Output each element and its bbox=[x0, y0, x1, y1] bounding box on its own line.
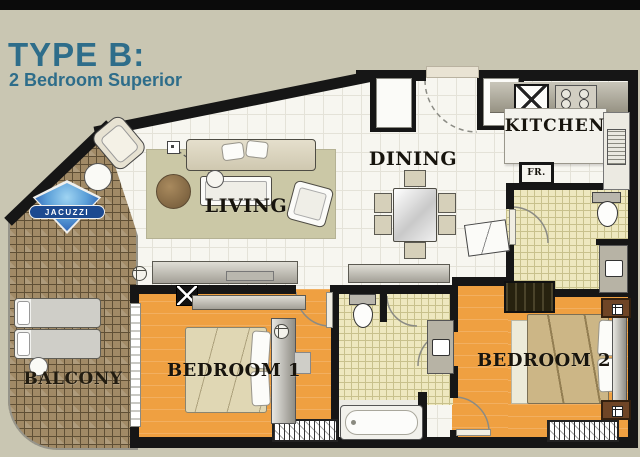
dining-chair-bottom bbox=[404, 242, 426, 259]
ceiling-fan-icon bbox=[206, 170, 224, 188]
lamp-switch-dot bbox=[171, 145, 174, 148]
pouf-round bbox=[156, 174, 191, 209]
vanity-right bbox=[599, 245, 628, 293]
lounger-headrest-1 bbox=[17, 301, 30, 325]
stove-burner-1 bbox=[561, 89, 571, 99]
kitchen-label: KITCHEN bbox=[500, 118, 610, 135]
dining-chair-top bbox=[404, 170, 426, 187]
fridge-label: FR. bbox=[527, 169, 546, 178]
outlet-icon-2 bbox=[274, 324, 289, 339]
stove-burner-2 bbox=[579, 89, 589, 99]
vanity-center bbox=[427, 320, 454, 374]
nightstand-plus-icon-1 bbox=[612, 304, 623, 315]
bedroom2-label: BEDROOM 2 bbox=[458, 352, 630, 370]
jacuzzi-label: JACUZZI bbox=[45, 208, 89, 217]
balcony-label: BALCONY bbox=[14, 371, 132, 388]
bedroom2-window bbox=[547, 420, 619, 442]
entry-closet-left bbox=[376, 78, 412, 128]
sink-right bbox=[605, 260, 623, 277]
bedroom2-nightstand-2 bbox=[601, 400, 631, 420]
dining-chair-left-1 bbox=[374, 193, 392, 213]
hall-console bbox=[152, 261, 298, 284]
wall-bedroom2-top bbox=[452, 277, 510, 286]
balcony-slider-door bbox=[130, 303, 141, 427]
wall-bathc-top bbox=[330, 285, 458, 294]
armchair-cushion bbox=[293, 187, 327, 221]
bedroom1-dresser bbox=[192, 295, 306, 310]
outlet-icon-1 bbox=[132, 266, 147, 281]
dining-chair-left-2 bbox=[374, 215, 392, 235]
bedroom1-door-leaf bbox=[326, 292, 333, 328]
lamp-switch-icon bbox=[167, 141, 180, 154]
plan-title: TYPE B: bbox=[8, 36, 145, 74]
hall-console-item bbox=[226, 271, 274, 281]
sink-center bbox=[432, 339, 450, 356]
dining-chair-right-2 bbox=[438, 215, 456, 235]
dining-sideboard bbox=[348, 264, 450, 283]
corridor-cabinet bbox=[464, 219, 510, 257]
sofa-cushion-1 bbox=[221, 142, 245, 162]
bedroom2-nightstand-1 bbox=[601, 298, 631, 318]
fridge-box: FR. bbox=[519, 162, 554, 185]
sun-lounger-1 bbox=[14, 298, 101, 328]
dining-label: DINING bbox=[363, 150, 463, 169]
living-label: LIVING bbox=[196, 197, 296, 216]
bathr-door-leaf bbox=[509, 209, 516, 245]
bedroom1-label: BEDROOM 1 bbox=[148, 362, 320, 380]
floorplan-image: TYPE B: 2 Bedroom Superior bbox=[0, 0, 640, 457]
bathtub-drain bbox=[351, 420, 356, 425]
sofa-cushion-2 bbox=[245, 140, 269, 160]
jacuzzi-banner: JACUZZI bbox=[29, 205, 105, 219]
entrance-door-leaf bbox=[426, 66, 479, 78]
lounger-headrest-2 bbox=[17, 332, 30, 356]
bedroom2-door-leaf bbox=[456, 429, 491, 436]
sun-lounger-2 bbox=[14, 329, 101, 359]
dining-chair-right-1 bbox=[438, 193, 456, 213]
jacuzzi-badge: JACUZZI bbox=[28, 180, 106, 234]
wall-bathc-stub bbox=[380, 292, 387, 322]
bedroom2-wardrobe bbox=[504, 281, 555, 313]
top-black-bar bbox=[0, 0, 640, 10]
plan-subtitle: 2 Bedroom Superior bbox=[9, 70, 182, 91]
nightstand-plus-icon-2 bbox=[612, 406, 623, 417]
wall-mid-horizontal bbox=[133, 285, 296, 294]
dining-table bbox=[393, 188, 437, 242]
bathtub bbox=[340, 405, 423, 440]
